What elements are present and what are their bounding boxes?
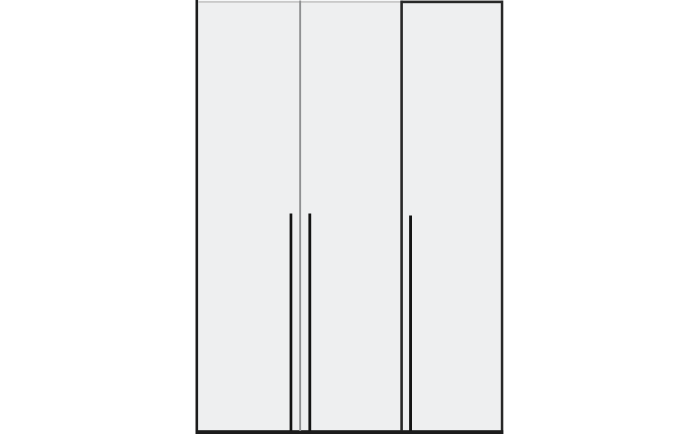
wardrobe-right-edge: [501, 1, 504, 435]
wardrobe-top-edge-right-section: [401, 1, 502, 4]
wardrobe-illustration: [0, 0, 700, 438]
wardrobe-bottom-edge: [196, 430, 504, 434]
wardrobe-left-edge: [196, 0, 199, 434]
wardrobe-door-panels-fill: [197, 1, 503, 433]
door-handle-right-door: [409, 216, 412, 431]
door-handle-left-door: [290, 214, 293, 431]
product-image-canvas: [0, 0, 700, 438]
door-divider-left: [299, 1, 301, 432]
door-divider-right: [400, 1, 403, 432]
door-handle-middle-door: [308, 214, 311, 431]
